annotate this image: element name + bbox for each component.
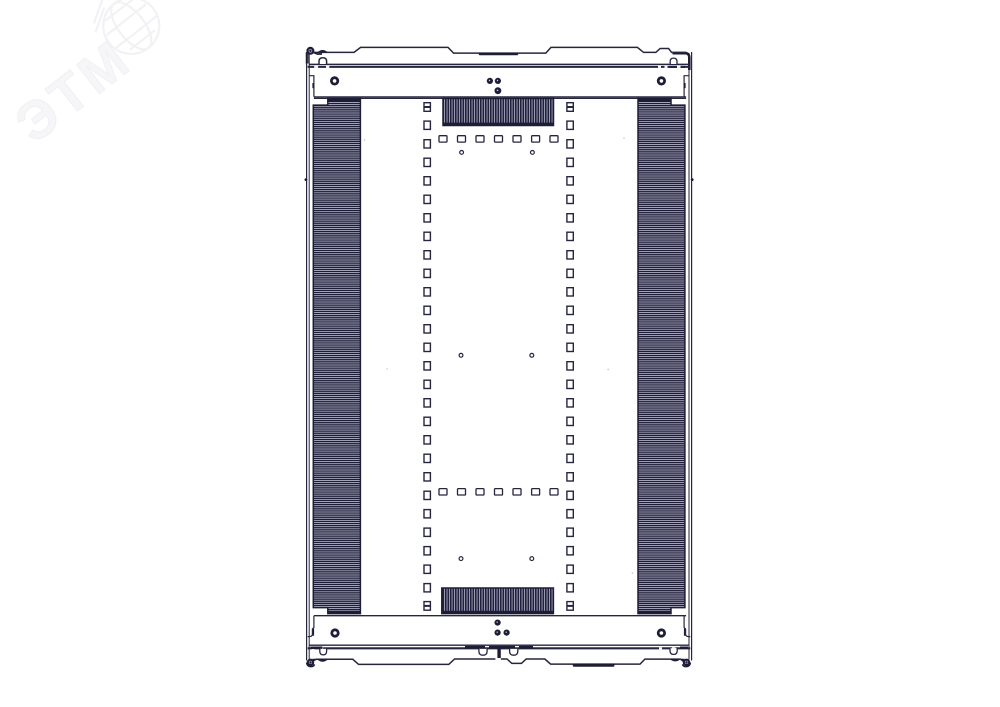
svg-text:ЭТМ: ЭТМ (4, 28, 142, 154)
